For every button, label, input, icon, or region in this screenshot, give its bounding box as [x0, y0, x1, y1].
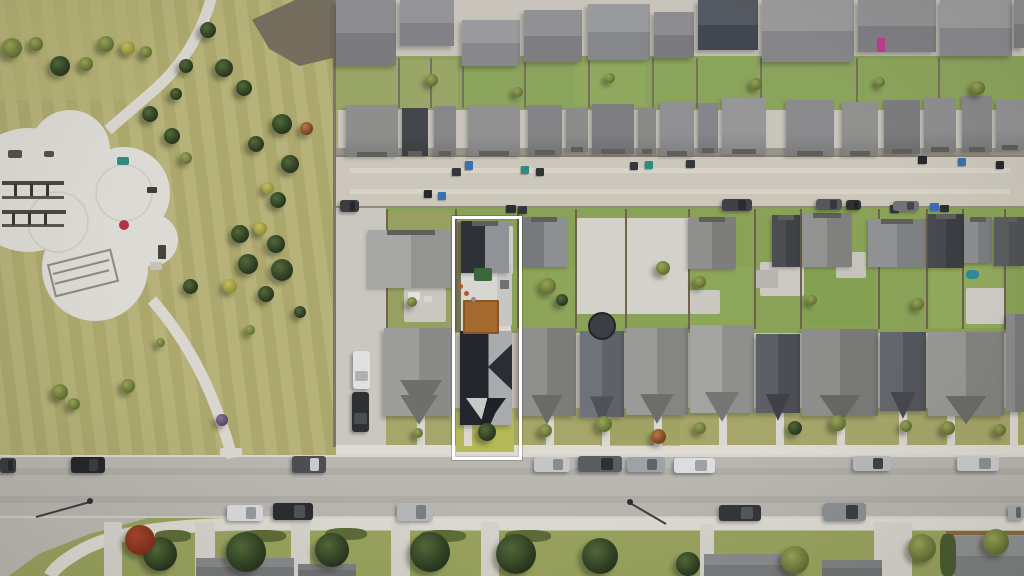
car-windshield: [246, 507, 256, 519]
garage-door: [1001, 217, 1018, 222]
car: [273, 503, 313, 520]
tree: [215, 59, 233, 77]
tree: [267, 235, 285, 253]
car-windshield: [553, 459, 563, 470]
trash-bin: [465, 161, 473, 170]
trash-bin: [521, 166, 529, 174]
tree: [121, 41, 135, 55]
garage-roof: [592, 104, 634, 154]
tree: [807, 295, 817, 305]
car: [1008, 505, 1024, 520]
tree: [875, 77, 885, 87]
house-roof: [626, 328, 688, 415]
tree: [941, 421, 955, 435]
tree: [496, 534, 536, 574]
garage-door: [936, 214, 956, 219]
tree: [781, 546, 809, 574]
tree: [270, 192, 286, 208]
plaza-ring-marking: [96, 165, 152, 221]
fence: [398, 58, 400, 108]
garage-roof: [346, 105, 398, 157]
garage-roof: [884, 100, 920, 154]
play-item: [8, 150, 22, 158]
trash-bin: [452, 168, 461, 176]
car-windshield: [350, 201, 355, 210]
tree: [426, 74, 438, 86]
tree: [300, 122, 313, 135]
house-roof: [524, 10, 582, 62]
teal-bench: [117, 157, 129, 165]
car-windshield: [601, 458, 613, 470]
fence: [754, 209, 756, 329]
backyard-shed: [756, 270, 778, 288]
front-walkway: [1010, 412, 1018, 446]
swing-tick: [44, 213, 47, 225]
car: [893, 201, 919, 211]
car-windshield: [738, 200, 746, 209]
tree: [605, 73, 615, 83]
car: [227, 505, 263, 521]
swing-tick: [30, 184, 33, 196]
walk-path-southeast: [152, 300, 232, 458]
car-windshield: [354, 413, 367, 424]
car: [353, 351, 370, 389]
play-item: [44, 151, 54, 157]
house-roof: [698, 0, 758, 50]
car-windshield: [846, 505, 858, 519]
tree: [694, 422, 706, 434]
garage-roof: [688, 217, 736, 269]
car: [957, 456, 999, 471]
garage-door: [970, 217, 986, 222]
garage-door: [571, 147, 583, 152]
garage-door: [850, 151, 870, 156]
tree: [2, 38, 22, 58]
tree: [68, 398, 80, 410]
garage-roof: [722, 98, 766, 154]
tree: [912, 298, 924, 310]
tree: [248, 136, 264, 152]
tree: [183, 279, 198, 294]
tree: [413, 428, 423, 438]
patio-5: [690, 290, 720, 314]
magenta-item: [877, 38, 885, 52]
car: [627, 457, 665, 472]
car: [846, 200, 861, 210]
tree: [226, 532, 266, 572]
car-windshield: [89, 459, 99, 471]
tree: [908, 534, 936, 562]
garage-roof: [638, 108, 656, 154]
tree: [216, 414, 228, 426]
patio-4: [966, 288, 1006, 324]
garage-door: [642, 149, 652, 154]
fence: [336, 206, 1024, 208]
plaza-bench: [158, 245, 166, 259]
red-ball: [119, 220, 129, 230]
car-windshield: [741, 507, 753, 519]
house-roof: [928, 332, 1004, 416]
garage-door: [357, 152, 386, 157]
car: [816, 199, 842, 210]
car-windshield: [355, 371, 368, 382]
garage-door: [439, 151, 451, 156]
plaza-item: [150, 262, 162, 270]
garage-roof: [660, 102, 694, 156]
garage-door: [797, 151, 824, 156]
trash-bin: [438, 192, 446, 200]
car: [722, 199, 752, 211]
tree: [245, 325, 255, 335]
tree: [29, 37, 43, 51]
trash-bin: [918, 156, 927, 164]
tree: [596, 416, 612, 432]
tree: [79, 57, 93, 71]
car: [397, 503, 433, 521]
garage-door: [387, 230, 435, 235]
trampoline: [588, 312, 616, 340]
tree: [271, 259, 293, 281]
driveway: [391, 522, 410, 576]
fence: [588, 58, 590, 108]
car: [352, 392, 369, 432]
fence: [652, 58, 654, 108]
car-windshield: [294, 505, 305, 518]
house-roof: [336, 0, 396, 66]
tree: [407, 297, 417, 307]
car: [719, 505, 761, 521]
tree: [200, 22, 216, 38]
plaza-bench: [147, 187, 157, 193]
fence: [696, 58, 698, 108]
garage-door: [969, 147, 986, 152]
garage-roof: [468, 106, 520, 156]
tree: [179, 59, 193, 73]
garage-roof: [964, 217, 992, 263]
garage-door: [892, 149, 912, 154]
tree: [983, 529, 1009, 555]
tree: [410, 532, 450, 572]
car-windshield: [830, 200, 837, 208]
garage-roof: [520, 217, 568, 267]
tree: [164, 128, 180, 144]
garage-door: [1002, 145, 1018, 150]
swing-tick: [14, 184, 17, 196]
garage-door: [408, 151, 423, 156]
garage-roof: [802, 213, 852, 267]
car-windshield: [8, 460, 12, 471]
tree: [156, 338, 165, 347]
tree: [170, 88, 182, 100]
car: [674, 458, 715, 473]
house-roof: [400, 0, 454, 46]
patio-chair: [424, 296, 432, 302]
trash-bin: [940, 205, 949, 212]
streetlight-head: [627, 499, 633, 505]
fence: [333, 0, 336, 447]
park-path-pad: [220, 448, 242, 456]
car: [340, 200, 359, 212]
tree: [750, 78, 762, 90]
garage-door: [535, 150, 554, 155]
car-windshield: [907, 202, 914, 210]
swing-tick: [28, 213, 31, 225]
car-windshield: [873, 458, 884, 469]
garage-door: [667, 151, 686, 156]
shared-concrete-pad: [575, 218, 689, 314]
walk-path-north: [108, 0, 212, 130]
car: [824, 503, 866, 521]
kiddie-pool: [966, 270, 979, 279]
tree: [994, 424, 1006, 436]
garage-roof: [698, 103, 718, 153]
tree: [272, 114, 292, 134]
tree: [651, 429, 666, 444]
house-roof: [654, 12, 694, 58]
trash-bin: [536, 168, 544, 176]
car: [292, 456, 326, 473]
fence: [625, 209, 627, 329]
garage-door: [601, 149, 625, 154]
garage-roof: [402, 108, 428, 156]
garage-door: [479, 151, 508, 156]
house-roof: [580, 331, 624, 417]
trash-bin: [996, 161, 1004, 169]
car-windshield: [1016, 507, 1020, 518]
trash-bin: [958, 158, 966, 166]
trash-bin: [424, 190, 432, 198]
tree: [539, 424, 552, 437]
tree: [52, 384, 68, 400]
garage-roof: [868, 219, 926, 267]
car-windshield: [647, 459, 658, 470]
plaza-ring-marking: [28, 192, 88, 252]
tree: [656, 261, 670, 275]
garage-door: [881, 219, 913, 224]
garage-door: [702, 148, 713, 153]
swing-frame-1b: [2, 196, 64, 199]
fence: [524, 58, 526, 108]
tree: [694, 276, 706, 288]
garage-door: [931, 147, 949, 152]
car-windshield: [979, 458, 991, 469]
tree: [294, 306, 306, 318]
tree: [238, 254, 258, 274]
hedge-column: [940, 534, 956, 576]
tree: [540, 278, 556, 294]
car-windshield: [854, 201, 858, 209]
car: [534, 457, 570, 472]
tree: [582, 538, 618, 574]
property-highlight-outline: [452, 216, 522, 460]
tree: [971, 81, 985, 95]
plaza-concrete-circle: [30, 110, 110, 190]
house-roof: [462, 20, 520, 66]
house-roof: [1006, 314, 1024, 412]
garage-roof: [994, 217, 1024, 266]
tree: [223, 279, 237, 293]
streetlight-head: [87, 498, 93, 504]
trash-bin: [686, 160, 695, 168]
garage-roof: [528, 105, 562, 155]
house-roof: [690, 325, 754, 413]
house-roof: [756, 334, 800, 413]
garage-door: [778, 215, 794, 220]
aerial-photo: Aerial drone photo of a suburban neighbo…: [0, 0, 1024, 576]
garage-door: [699, 217, 726, 222]
tree: [121, 379, 135, 393]
house-roof: [588, 4, 650, 60]
house-roof: [880, 332, 926, 411]
tree: [180, 152, 192, 164]
trash-bin: [518, 206, 527, 214]
house-roof-partial: [822, 560, 882, 576]
tree: [254, 222, 267, 235]
car: [853, 456, 891, 471]
garage-roof: [772, 215, 800, 267]
garage-roof: [962, 96, 992, 152]
tree: [262, 182, 274, 194]
garage-roof: [368, 230, 454, 288]
tree: [50, 56, 70, 76]
car: [0, 458, 16, 473]
car-windshield: [310, 458, 320, 471]
tree: [315, 533, 349, 567]
tree: [142, 106, 158, 122]
garage-roof: [434, 106, 456, 156]
garage-roof: [928, 214, 964, 268]
house-roof: [1014, 0, 1024, 48]
tree: [98, 36, 114, 52]
tree: [258, 286, 274, 302]
tree: [900, 420, 912, 432]
tree: [676, 552, 700, 576]
tree: [556, 294, 568, 306]
tree: [830, 415, 846, 431]
tree: [513, 87, 523, 97]
swing-tick: [12, 213, 15, 225]
house-roof: [518, 328, 576, 416]
garage-door: [732, 149, 757, 154]
house-roof: [802, 329, 878, 416]
garage-door: [531, 217, 558, 222]
trash-bin: [630, 162, 638, 170]
garage-roof: [566, 108, 588, 152]
swing-frame-1: [2, 181, 64, 185]
tree: [281, 155, 299, 173]
tree: [140, 46, 152, 58]
garage-roof: [842, 102, 878, 156]
house-roof: [858, 0, 936, 52]
trash-bin: [930, 203, 939, 211]
driveway: [104, 522, 122, 576]
garage-roof: [786, 100, 834, 156]
garage-roof: [924, 98, 956, 152]
house-roof: [940, 0, 1012, 56]
tree: [231, 225, 249, 243]
garage-roof: [996, 100, 1024, 150]
tree: [236, 80, 252, 96]
car: [71, 457, 105, 473]
car: [578, 456, 622, 472]
tree: [125, 525, 155, 555]
fence: [575, 209, 577, 329]
trash-bin: [645, 161, 653, 169]
garage-door: [813, 213, 841, 218]
car-windshield: [695, 460, 706, 471]
car-windshield: [416, 505, 426, 519]
house-roof: [762, 0, 854, 62]
swing-tick: [46, 184, 49, 196]
plaza-concrete-circle: [126, 214, 178, 266]
fence: [856, 58, 858, 108]
trash-bin: [506, 205, 516, 213]
tree: [788, 421, 802, 435]
